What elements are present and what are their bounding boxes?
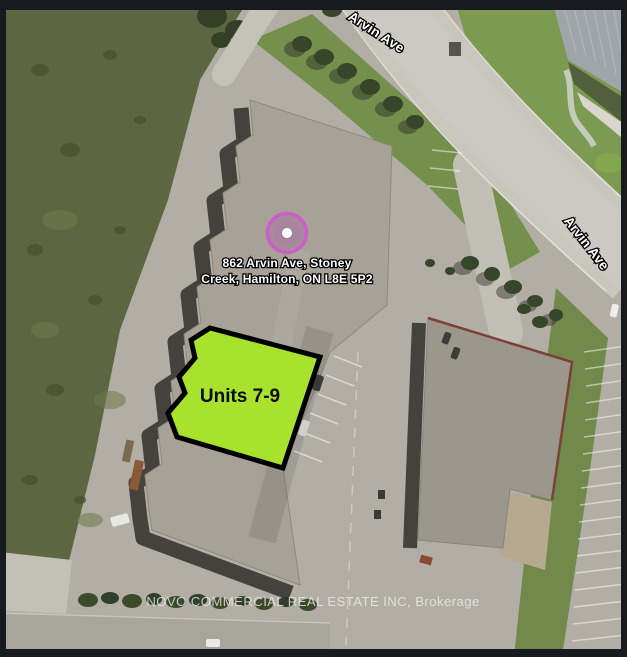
marker-dot: [282, 228, 293, 239]
brokerage-watermark: NOVO COMMERCIAL REAL ESTATE INC, Brokera…: [146, 594, 479, 609]
units-7-9-label: Units 7-9: [200, 386, 280, 407]
bright-lawn-spot: [595, 153, 623, 173]
location-marker[interactable]: [268, 214, 307, 253]
listing-map-image: Units 7-9 862 Arvin Ave, Stoney Creek, H…: [0, 0, 627, 657]
dumpster: [449, 42, 461, 56]
address-line-1: 862 Arvin Ave, Stoney: [223, 256, 352, 270]
satellite-map: Units 7-9 862 Arvin Ave, Stoney Creek, H…: [0, 0, 627, 657]
address-line-2: Creek, Hamilton, ON L8E 5P2: [201, 272, 373, 286]
right-building-shadow: [410, 323, 419, 548]
